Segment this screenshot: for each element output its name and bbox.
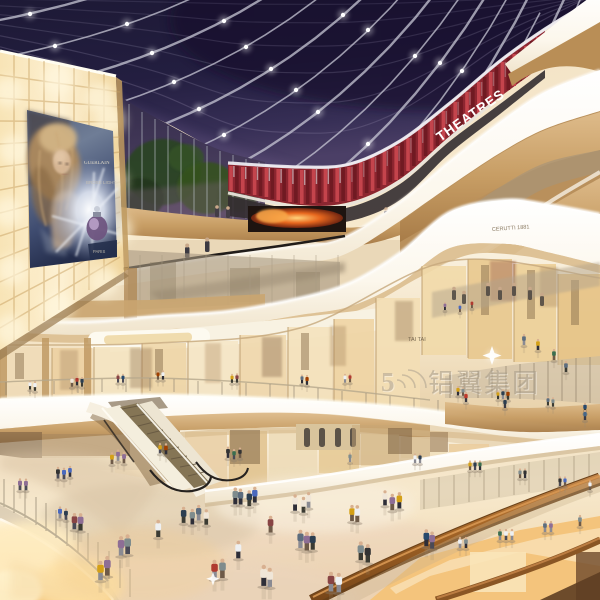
svg-text:PARIS: PARIS [93,249,105,254]
svg-text:5: 5 [381,367,395,397]
svg-text:铝翼集团: 铝翼集团 [428,369,540,398]
svg-text:BROSE LIGHT: BROSE LIGHT [86,180,117,185]
svg-text:TAI TAI: TAI TAI [408,337,426,343]
svg-text:GUERLAIN: GUERLAIN [84,161,110,166]
